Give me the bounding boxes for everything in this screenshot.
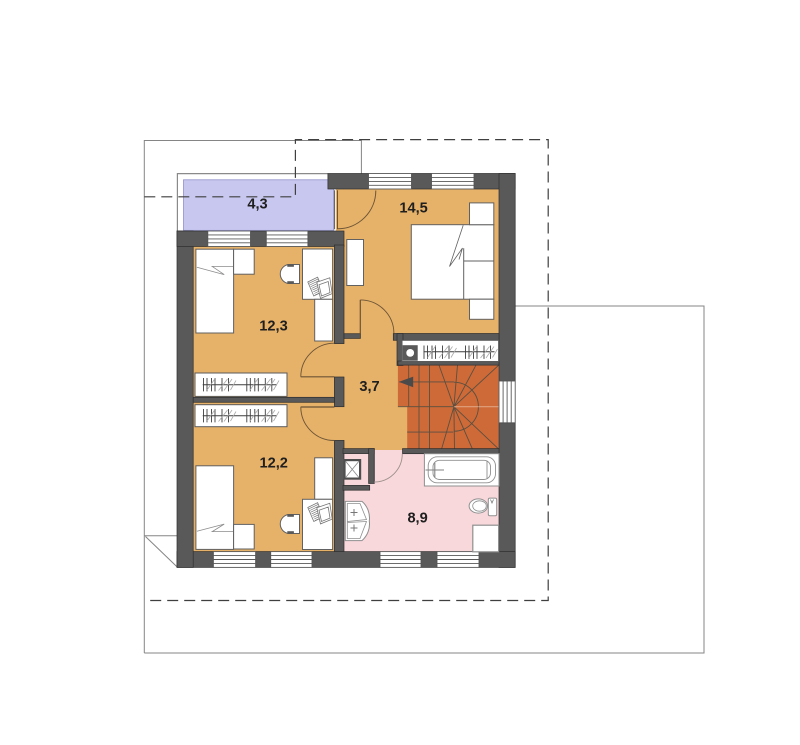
svg-text:3,7: 3,7 (359, 379, 379, 395)
svg-text:8,9: 8,9 (407, 511, 427, 527)
svg-text:4,3: 4,3 (247, 196, 267, 212)
svg-text:12,2: 12,2 (259, 456, 287, 472)
svg-text:12,3: 12,3 (259, 318, 287, 334)
svg-text:14,5: 14,5 (399, 201, 427, 217)
